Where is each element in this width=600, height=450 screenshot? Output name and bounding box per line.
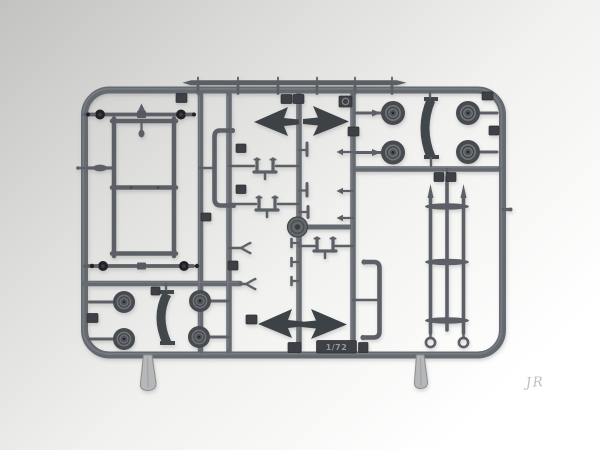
road-wheel: [456, 140, 480, 164]
watermark-signature: JR: [522, 374, 544, 391]
road-wheel: [381, 141, 405, 165]
axle-part-bottom: [85, 261, 199, 271]
axle-part-top: [85, 110, 196, 120]
hub-part: [288, 217, 308, 237]
road-wheel: [381, 101, 405, 125]
scale-tag: 1/72: [317, 341, 357, 354]
photo-model-kit-sprue: 1/72 JR: [0, 0, 600, 450]
ladder-frame-part: [425, 169, 469, 347]
road-wheel: [456, 101, 480, 125]
road-wheel: [188, 326, 210, 348]
scale-tag-text: 1/72: [326, 343, 348, 352]
road-wheel: [189, 290, 211, 312]
road-wheel: [113, 291, 135, 313]
road-wheel: [113, 328, 135, 350]
